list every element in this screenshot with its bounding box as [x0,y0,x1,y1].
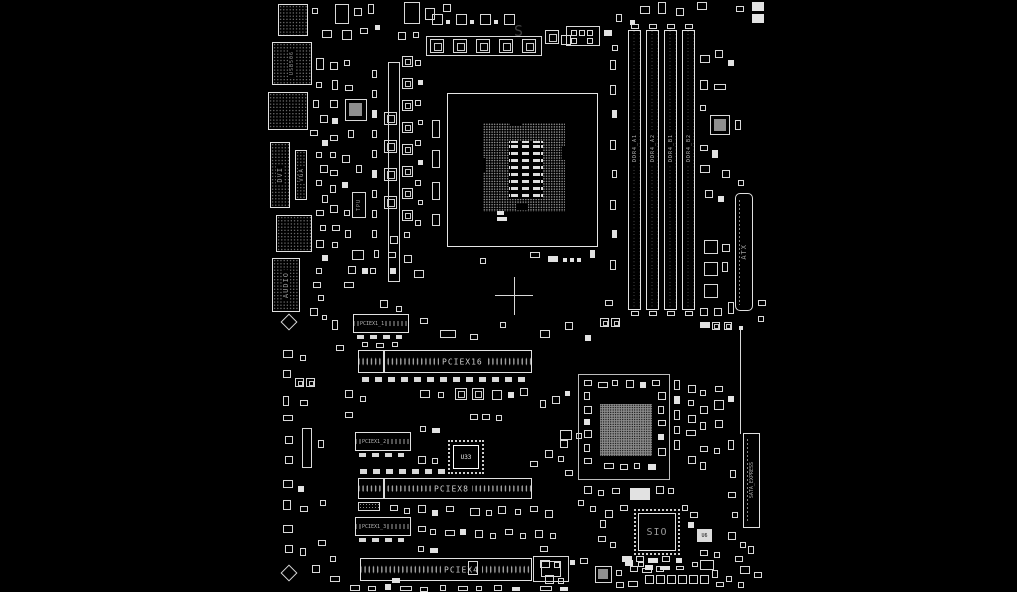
component [350,585,360,591]
component [676,566,684,570]
component [640,382,646,388]
u6-chip: U6 [697,529,712,542]
component [570,560,575,565]
component [730,470,736,478]
component [652,380,660,386]
component [740,330,741,434]
component [320,500,326,506]
component [330,185,336,193]
component [283,500,291,510]
component [372,170,377,178]
component [383,479,385,498]
io-port-lan [268,92,308,130]
component [718,196,724,202]
component [322,30,332,38]
component [605,300,613,306]
component [560,440,568,448]
component [322,315,327,320]
component [649,311,657,316]
component [738,582,744,588]
component [674,410,680,420]
component [545,450,553,458]
component [330,152,336,158]
component [497,211,504,215]
pcie-x4-slot: PCIEX4 [360,558,532,581]
component [281,565,298,582]
dimm-slot-2: DDR4_A2 [646,30,659,310]
component [499,39,513,53]
component [690,512,698,518]
atx-power-connector: ATX [735,193,753,311]
component [356,165,362,173]
component [667,24,675,29]
component [540,330,550,338]
component [658,434,664,440]
component [345,99,367,121]
component [470,20,474,24]
pcie-x1-label: PCIEX1_2 [361,439,387,445]
component [535,530,543,538]
component [392,578,400,583]
component [384,140,397,153]
component [332,80,338,90]
component [402,188,413,199]
component [362,342,368,347]
component [562,146,567,160]
component [390,268,396,274]
component [530,252,540,258]
sata-express-label: SATA_EXPRESS [749,462,755,498]
component [458,586,468,591]
component [545,510,553,518]
component [584,392,590,400]
component [344,60,350,66]
component [420,587,428,592]
component [540,546,548,552]
component [648,464,656,470]
component [620,505,628,511]
component [404,508,410,514]
component [456,14,467,25]
component [658,420,666,426]
component [700,446,708,452]
component [310,308,318,316]
component [415,180,421,186]
super-io-chip: SIO [638,513,676,551]
audio-port-label: AUDIO [282,270,290,300]
pad-strip [357,335,402,339]
component [700,575,709,584]
component [455,388,467,400]
component [740,542,746,548]
vga-port: VGA [295,150,307,200]
pcie-x8-label: PCIEX8 [431,484,472,493]
component [330,170,338,176]
dimm-slot-3: DDR4_B1 [664,30,677,310]
component [576,433,582,439]
component [682,505,688,511]
component [498,506,506,514]
component [580,558,588,564]
component [316,82,322,88]
component [384,196,397,209]
component [688,456,696,464]
component [283,415,293,421]
component [697,2,707,10]
component [590,506,596,512]
component [689,575,698,584]
component [348,266,356,274]
component [475,530,483,538]
component [612,110,617,118]
component [540,586,552,591]
component [565,322,573,330]
component [404,255,412,263]
component [470,508,480,516]
component [715,420,723,428]
component [728,302,734,314]
component [579,30,585,36]
component [590,250,595,258]
component [312,565,320,573]
component [634,463,640,469]
component [316,152,322,158]
io-port-top [278,4,308,36]
component [630,488,650,500]
dimm-slot-4: DDR4_B2 [682,30,695,310]
component [500,322,506,328]
component [560,430,572,440]
component [283,396,289,406]
vga-port-label: VGA [298,166,305,184]
component [330,556,336,562]
component [402,210,413,221]
component [372,230,377,238]
component [610,200,616,210]
component [318,540,326,546]
component [374,250,379,258]
component [724,322,732,330]
component [611,318,620,327]
component [415,140,421,146]
motherboard-boardview: USB506 DVI VGA AUDIO S DDR4_A1 DDR4_A2 D… [0,0,1017,592]
component [306,378,315,387]
component [700,422,706,430]
component [522,39,536,53]
component [558,578,564,584]
component [600,318,609,327]
component [335,4,349,24]
component [631,24,639,29]
component [300,355,306,361]
component [420,318,428,324]
component [571,30,577,36]
component [372,150,377,158]
component [402,144,413,155]
component [688,385,696,393]
component [380,300,388,308]
component [375,25,380,30]
component [678,575,687,584]
component [688,415,696,423]
component [704,240,718,254]
component [476,586,482,591]
component [700,550,708,556]
component [318,295,324,301]
component [700,165,710,173]
component [692,562,698,567]
component [610,85,616,95]
u33-label: U33 [461,454,472,461]
component [604,30,612,36]
component [418,120,423,125]
component [283,350,293,358]
component [700,145,708,151]
component [728,440,734,450]
component [384,168,397,181]
component [330,576,340,582]
component [344,282,354,288]
component [722,170,730,178]
component [540,400,546,408]
component [620,464,628,470]
component [390,236,398,244]
component [362,268,368,274]
component [438,392,444,398]
component [318,440,324,448]
component [285,436,293,444]
component [316,210,324,216]
component [453,39,467,53]
component [550,533,556,539]
dvi-port: DVI [270,142,290,208]
component [740,566,750,574]
component [415,60,421,66]
component [418,505,426,513]
dimm-slot-label: DDR4_B2 [686,131,692,165]
component [728,60,734,66]
component [748,546,754,554]
tpu-chip: TPU [352,192,366,218]
component [704,262,718,276]
component [300,400,308,406]
component [578,500,584,506]
u33-chip: U33 [453,445,479,469]
component [628,581,638,587]
component [558,456,564,462]
component [714,552,720,558]
component [316,268,322,274]
component [712,322,720,330]
component [584,430,592,438]
component [700,462,706,470]
component [480,14,491,25]
component [476,39,490,53]
component [482,414,490,420]
component [700,80,708,90]
component [320,225,326,231]
component [656,486,664,494]
component [595,566,612,583]
component [418,200,423,205]
component [481,158,486,172]
component [612,380,618,386]
component [332,320,338,330]
component [413,32,419,38]
dimm-slot-label: DDR4_A1 [632,131,638,165]
component [336,345,344,351]
component [360,28,368,34]
component [383,351,385,372]
component [497,217,507,221]
component [732,512,738,518]
component [712,570,718,578]
component [415,220,421,226]
component [516,204,528,210]
component [418,546,424,552]
pad-strip [360,469,446,474]
component [432,214,440,226]
component [404,232,410,238]
component [345,412,353,418]
component [486,510,492,516]
component [320,115,328,123]
component [700,55,710,63]
pcie-x16-label: PCIEX16 [439,357,486,366]
component [598,382,608,388]
component [700,406,708,414]
component [584,380,592,386]
component [584,486,592,494]
component [295,378,304,387]
component [372,70,377,78]
component [728,532,736,540]
component [300,506,308,512]
component [710,115,730,135]
component [390,505,398,511]
component [430,548,438,553]
component [610,260,616,270]
component [320,165,328,173]
component [300,548,306,556]
component [432,458,438,464]
component [674,426,680,434]
component [360,396,366,402]
component [460,529,466,535]
component [714,84,726,90]
component [396,306,402,312]
component [612,230,617,238]
component [605,510,613,518]
component [312,8,318,14]
component [418,160,423,165]
component [674,396,680,404]
component [384,112,397,125]
component [376,343,384,348]
dimm-slot-1: DDR4_A1 [628,30,641,310]
component [345,85,353,91]
component [752,2,764,11]
component [676,558,682,563]
crosshair-vertical [514,277,515,315]
component [281,314,298,331]
component [432,14,443,25]
component [540,560,550,568]
component [584,406,592,414]
component [545,575,554,584]
component [402,78,413,89]
component [322,140,328,146]
pad-strip [362,377,530,382]
component [674,440,680,450]
component [738,180,744,186]
component [400,586,412,591]
component [504,14,515,25]
component [313,100,319,108]
component [662,556,670,562]
component [402,122,413,133]
component [404,2,420,24]
usb-port-label: USB506 [289,49,295,77]
component [648,558,658,563]
component [640,6,650,14]
component [598,536,606,542]
component [302,428,312,468]
component [298,486,304,492]
component [754,572,762,578]
component [649,24,657,29]
component [332,242,338,248]
component [316,58,324,70]
component [313,282,321,288]
component [330,62,338,70]
component [616,570,622,576]
component [344,210,350,216]
component [625,560,633,566]
component [468,561,478,575]
component [552,396,560,404]
component [446,506,454,512]
component [686,430,696,436]
u6-label: U6 [701,533,707,539]
component [688,522,694,528]
component [728,492,736,498]
component [430,39,444,53]
component [545,30,559,44]
component [560,587,568,591]
component [342,182,348,188]
component [735,556,743,562]
component [494,585,502,591]
component [398,32,406,40]
component [512,587,520,591]
component [418,456,426,464]
component [612,45,618,51]
component [554,562,560,568]
component [310,130,318,136]
component [492,390,502,400]
audio-codec-block [276,215,312,252]
component [616,582,624,588]
component [712,150,718,158]
component [612,170,617,178]
component [616,14,622,22]
pcie-x1-slot-1: PCIEX1_1 [353,314,409,333]
component [330,205,338,213]
component [370,268,376,274]
component [345,390,353,398]
component [716,582,724,587]
